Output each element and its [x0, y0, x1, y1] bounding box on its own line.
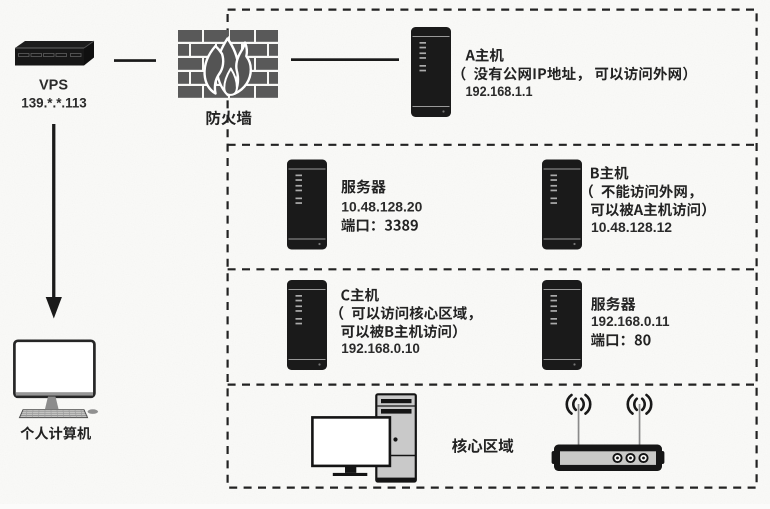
svg-text:VPS: VPS: [39, 78, 68, 94]
svg-text:192.168.1.1: 192.168.1.1: [466, 83, 533, 99]
svg-text:192.168.0.10: 192.168.0.10: [341, 340, 420, 356]
svg-text:10.48.128.20: 10.48.128.20: [341, 199, 422, 215]
svg-text:192.168.0.11: 192.168.0.11: [591, 313, 670, 329]
svg-text:139.*.*.113: 139.*.*.113: [21, 94, 87, 110]
svg-text:10.48.128.12: 10.48.128.12: [591, 219, 672, 235]
